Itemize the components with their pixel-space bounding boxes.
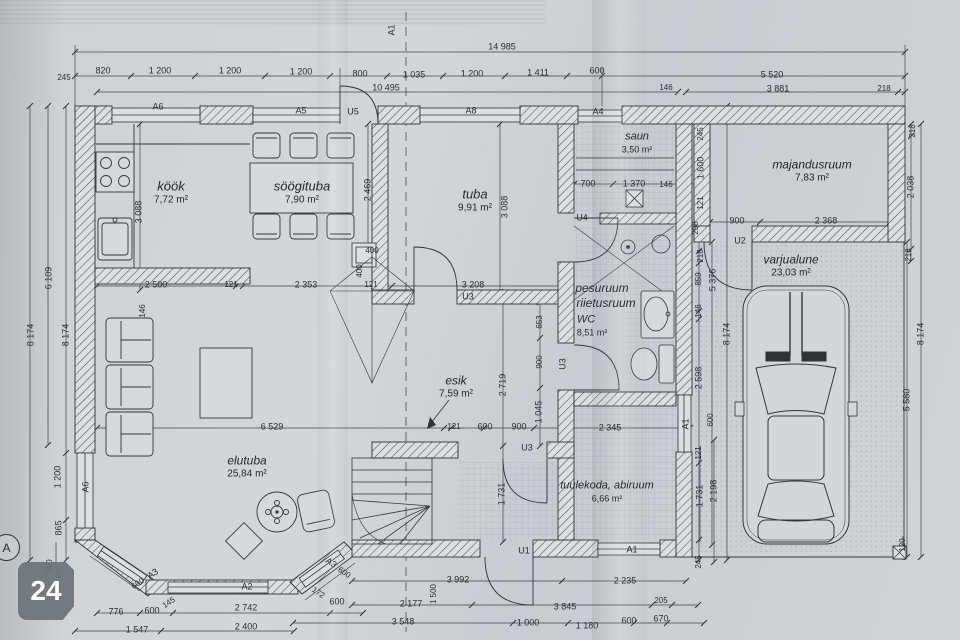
- dimension-label: 6 109: [45, 267, 54, 290]
- dimension-label: 5 376: [709, 269, 718, 292]
- dimension-label: 670: [653, 615, 668, 624]
- dimension-label: 859: [695, 272, 703, 285]
- armchair: [296, 489, 335, 533]
- dimension-label: 600: [707, 413, 715, 426]
- dimension-label: 218: [877, 85, 890, 93]
- dimension-label: 146: [659, 84, 672, 92]
- dimension-label: A2: [241, 583, 252, 592]
- dimension-label: 2 345: [599, 424, 622, 433]
- dimension-label: 800: [352, 70, 367, 79]
- dimension-label: 1 600: [697, 157, 706, 180]
- door-u3-wc: [574, 345, 619, 390]
- dimension-label: U1: [518, 547, 530, 556]
- room-name: tuba: [458, 187, 492, 203]
- room-name: majandusruum: [772, 157, 851, 172]
- dimension-label: 8,51 m²: [577, 329, 608, 338]
- dimension-label: 205: [654, 597, 667, 605]
- dimension-label: 3 881: [767, 85, 790, 94]
- stove-icon: [96, 152, 134, 192]
- dimension-label: 6 529: [261, 423, 284, 432]
- dimension-label: 1 547: [126, 626, 149, 635]
- floor-plan-sheet: 14 9858201 2001 2001 2008001 0351 2001 4…: [0, 0, 960, 640]
- dimension-label: riietusruum: [576, 297, 635, 309]
- dimension-label: 600: [621, 617, 636, 626]
- dimension-label: 1 370: [623, 180, 646, 189]
- dimension-label: 400: [356, 264, 364, 277]
- dimension-label: A5: [295, 107, 306, 116]
- dimension-label: WC: [577, 315, 595, 326]
- dimension-label: 1 411: [527, 69, 549, 78]
- dimension-label: 3 548: [392, 618, 415, 627]
- dimension-label: 146: [139, 304, 147, 317]
- dimension-label: 1 731: [696, 485, 705, 508]
- dimension-label: 2 400: [235, 623, 258, 632]
- dimension-label: A8: [465, 107, 476, 116]
- dimension-label: 1 200: [461, 70, 484, 79]
- room-label-esik: esik7,59 m²: [439, 373, 473, 401]
- dimension-label: A1: [682, 418, 691, 429]
- dimension-label: 1 200: [219, 67, 242, 76]
- dimension-label: 2 038: [907, 176, 916, 199]
- sauna-heater-icon: [626, 190, 643, 207]
- room-label-tuba: tuba9,91 m²: [458, 187, 492, 216]
- dimension-label: 1 000: [517, 619, 540, 628]
- room-label-kook: köök7,72 m²: [154, 179, 188, 208]
- dimension-label: 121: [695, 446, 703, 459]
- dimension-label: 820: [95, 67, 110, 76]
- dimension-label: 1 500: [430, 584, 438, 604]
- dimension-label: 600: [144, 607, 159, 616]
- dimension-label: 865: [55, 520, 64, 535]
- room-label-soogituba: söögituba7,90 m²: [274, 179, 330, 208]
- grid-marker-letter: A: [2, 541, 10, 555]
- dimension-label: A1: [626, 546, 637, 555]
- room-name: elutuba: [227, 453, 266, 468]
- dimension-label: 8 174: [917, 323, 926, 346]
- room-label-elutuba: elutuba25,84 m²: [227, 453, 266, 481]
- dimension-label: 2 177: [400, 600, 423, 609]
- round-table: [257, 492, 297, 532]
- room-area: 6,66 m²: [560, 493, 654, 504]
- sheet-number-badge: 24: [18, 562, 74, 620]
- esik-arrow: [427, 400, 449, 429]
- dimension-label: 121: [224, 281, 237, 289]
- dimension-label: 3 845: [554, 603, 577, 612]
- dimension-label: 2 500: [145, 281, 168, 290]
- stool: [226, 523, 263, 560]
- room-label-varjualune: varjualune23,03 m²: [763, 252, 818, 280]
- dimension-label: 600: [329, 598, 344, 607]
- chimney: [330, 243, 414, 383]
- dimension-label: 3 088: [135, 201, 144, 224]
- room-name: köök: [154, 179, 188, 195]
- car: [735, 286, 857, 544]
- dimension-label: 5 520: [761, 71, 784, 80]
- dimension-label: 14 985: [488, 43, 516, 52]
- dimension-label: 218: [905, 248, 913, 261]
- dimension-label: U5: [347, 108, 359, 117]
- dimension-label: 653: [536, 315, 544, 328]
- door-u3-tuba: [414, 247, 457, 290]
- dimension-label: 900: [536, 355, 544, 368]
- room-name: tuulekoda, abiruum: [560, 480, 654, 494]
- dimension-label: 8 174: [62, 324, 71, 347]
- room-area: 23,03 m²: [763, 267, 818, 280]
- dimension-label: U2: [734, 237, 746, 246]
- living-furniture: [106, 318, 336, 559]
- dimension-label: 1 200: [290, 68, 313, 77]
- dimension-label: 10 495: [372, 84, 400, 93]
- room-label-tuulekoda: tuulekoda, abiruum6,66 m²: [560, 480, 654, 505]
- dimension-label: U3: [521, 444, 533, 453]
- dimension-label: 8 174: [723, 323, 732, 346]
- dimension-label: U3: [462, 293, 474, 302]
- room-area: 7,83 m²: [772, 172, 851, 185]
- dimension-label: 2 742: [235, 604, 258, 613]
- dimension-label: U3: [559, 358, 568, 370]
- coffee-table: [200, 348, 252, 418]
- dimension-label: 1 180: [576, 622, 599, 631]
- dimension-label: 2 368: [815, 217, 838, 226]
- dimension-label: 3 208: [462, 281, 485, 290]
- dimension-label: 2 719: [499, 374, 508, 397]
- wc-sink-icon: [641, 291, 674, 338]
- dimension-label: 146: [695, 304, 703, 317]
- room-area: 9,91 m²: [458, 203, 492, 216]
- room-area: 7,90 m²: [274, 195, 330, 208]
- room-label-majandusruum: majandusruum7,83 m²: [772, 157, 851, 185]
- room-label-saun: saun3,50 m²: [622, 131, 653, 156]
- dimension-label: 298: [692, 221, 700, 234]
- dimension-label: 218: [697, 249, 705, 262]
- sofa: [106, 318, 153, 456]
- dimension-label: U4: [576, 214, 588, 223]
- dimension-label: A1: [388, 24, 397, 35]
- dimension-label: 245: [695, 555, 703, 568]
- dimension-label: 121: [447, 423, 460, 431]
- dimension-label: 400: [365, 247, 378, 255]
- dimension-label: 3 992: [447, 576, 470, 585]
- dimension-label: 600: [589, 67, 604, 76]
- dimension-label: 1 200: [54, 466, 63, 489]
- dimension-label: 1 045: [535, 401, 544, 424]
- dimension-label: 1 731: [498, 483, 507, 506]
- room-name: varjualune: [763, 252, 818, 267]
- dimension-label: 776: [108, 608, 123, 617]
- dimension-label: 600: [477, 423, 492, 432]
- dimension-label: A4: [592, 108, 603, 117]
- dimension-label: 121: [697, 196, 705, 209]
- dimension-label: 5 580: [903, 389, 912, 412]
- dimension-label: 2 198: [710, 480, 719, 503]
- dimension-label: 120: [899, 538, 907, 551]
- dimension-label: A6: [152, 103, 163, 112]
- room-name: söögituba: [274, 179, 330, 195]
- dimension-label: 245: [697, 127, 705, 140]
- dimension-label: 2 353: [295, 281, 318, 290]
- plan-drawing: [0, 0, 960, 640]
- dimension-label: 700: [580, 180, 595, 189]
- dimension-label: pesuruum: [575, 282, 628, 294]
- dimension-label: 218: [909, 124, 917, 137]
- dimension-label: 2 235: [614, 577, 637, 586]
- dimension-label: 3 088: [501, 196, 510, 219]
- room-area: 7,72 m²: [154, 195, 188, 208]
- dimension-label: A6: [82, 481, 91, 492]
- sheet-number: 24: [30, 575, 61, 607]
- window-a2-bay: [168, 582, 268, 593]
- dimension-label: 146: [659, 181, 672, 189]
- dimension-label: 2 598: [695, 367, 704, 390]
- room-name: saun: [622, 131, 653, 145]
- dimension-label: 121: [364, 281, 377, 289]
- dimension-label: 1 200: [149, 67, 172, 76]
- dimension-label: 900: [511, 423, 526, 432]
- dimension-label: 245: [57, 74, 70, 82]
- dimension-label: 8 174: [27, 324, 36, 347]
- stairs: [352, 458, 432, 544]
- dimension-label: 900: [729, 217, 744, 226]
- dimension-label: 1 035: [403, 71, 426, 80]
- room-area: 7,59 m²: [439, 388, 473, 401]
- room-area: 25,84 m²: [227, 468, 266, 481]
- room-area: 3,50 m²: [622, 144, 653, 155]
- dimension-label: 2 469: [364, 179, 373, 202]
- kitchen-sink-icon: [98, 218, 132, 260]
- room-name: esik: [439, 373, 473, 388]
